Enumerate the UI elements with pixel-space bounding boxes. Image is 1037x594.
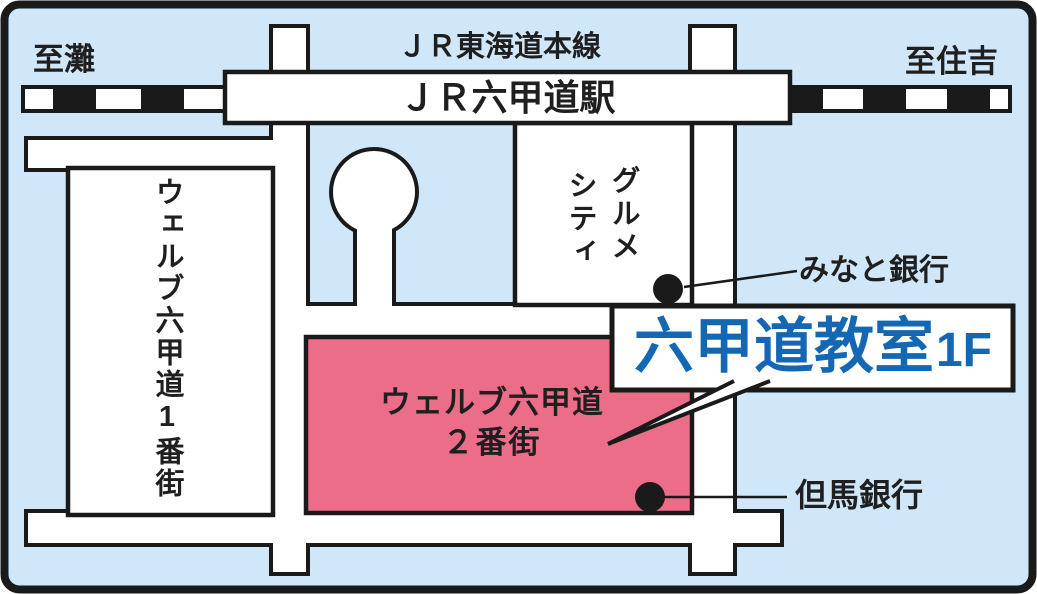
tajima-bank-label: 但馬銀行 — [795, 479, 923, 511]
station-label-box: ＪＲ六甲道駅 — [225, 72, 790, 123]
classroom-floor: 1F — [936, 327, 992, 375]
road-top-left — [28, 140, 306, 168]
building-welv2-label: ウェルブ六甲道 ２番街 — [327, 387, 657, 458]
railway-left — [21, 85, 227, 113]
railway-tie — [141, 89, 184, 109]
classroom-name: 六甲道教室 — [634, 317, 934, 377]
railway-tie — [792, 89, 823, 109]
minato-bank-dot — [653, 274, 683, 304]
tajima-bank-dot — [635, 482, 665, 512]
railway-tie — [53, 89, 96, 109]
minato-bank-label: みなと銀行 — [799, 256, 949, 286]
road-bottom — [28, 513, 780, 543]
gourmet-city-label-col2: シティ — [565, 170, 594, 270]
building-welv2-label-line2: ２番街 — [327, 427, 657, 458]
direction-label-right: 至住吉 — [905, 46, 998, 77]
railway-tie — [947, 89, 990, 109]
station-label: ＪＲ六甲道駅 — [399, 80, 615, 116]
roundabout — [333, 151, 415, 233]
building-welv2-label-line1: ウェルブ六甲道 — [327, 387, 657, 418]
rail-line-label: ＪＲ東海道本線 — [398, 33, 601, 62]
location-map: 至灘 至住吉 ＪＲ東海道本線 ＪＲ六甲道駅 ウェルブ六甲道1番街 グルメ シティ… — [0, 0, 1037, 594]
building-welv1-label: ウェルブ六甲道1番街 — [152, 177, 181, 522]
gourmet-city-label-col1: グルメ — [608, 165, 637, 275]
direction-label-left: 至灘 — [33, 44, 95, 75]
railway-right — [788, 85, 1012, 113]
railway-tie — [863, 89, 906, 109]
classroom-callout-content: 六甲道教室 1F — [617, 310, 1009, 384]
